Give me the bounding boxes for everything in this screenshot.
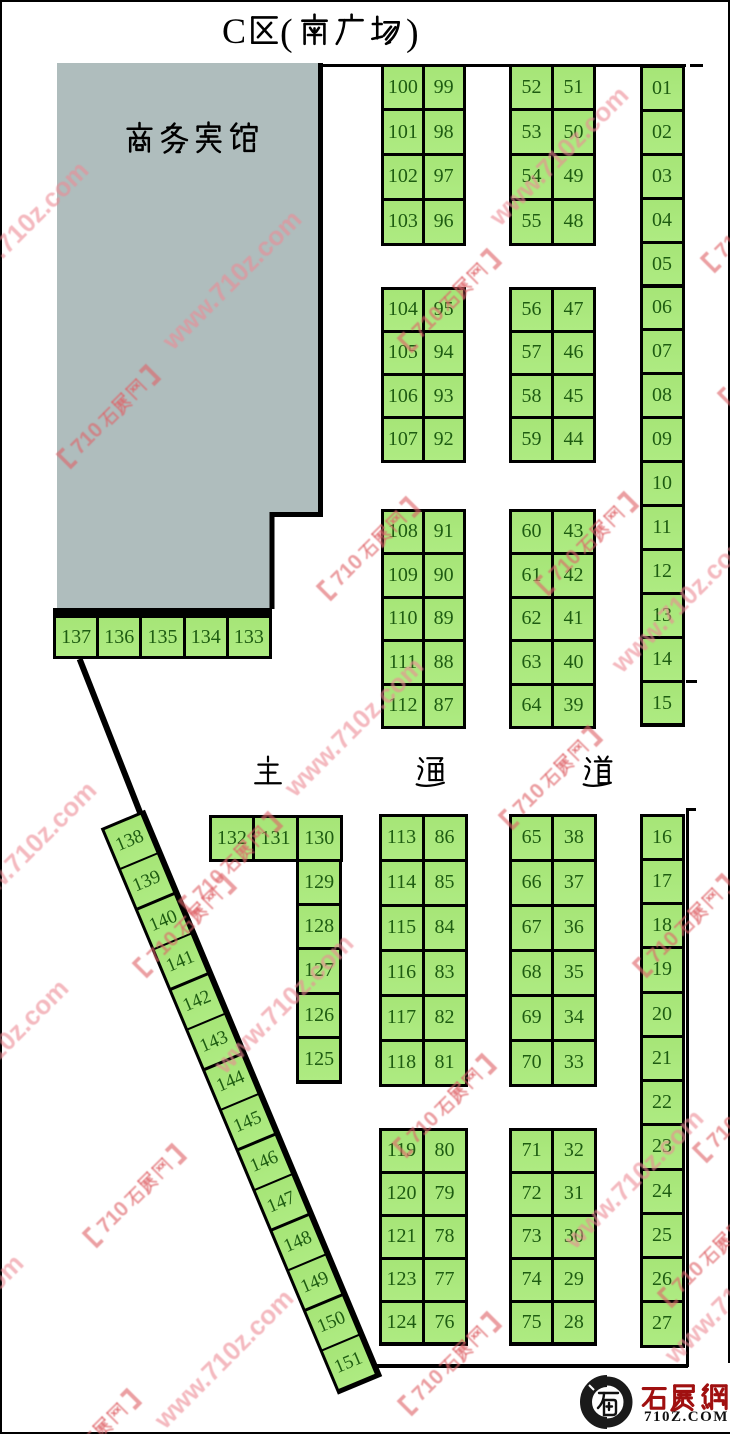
svg-text:C: C (222, 11, 246, 51)
svg-text:710Z.COM: 710Z.COM (644, 1409, 729, 1425)
svg-text:): ) (406, 12, 419, 53)
svg-text:(: ( (280, 12, 293, 53)
